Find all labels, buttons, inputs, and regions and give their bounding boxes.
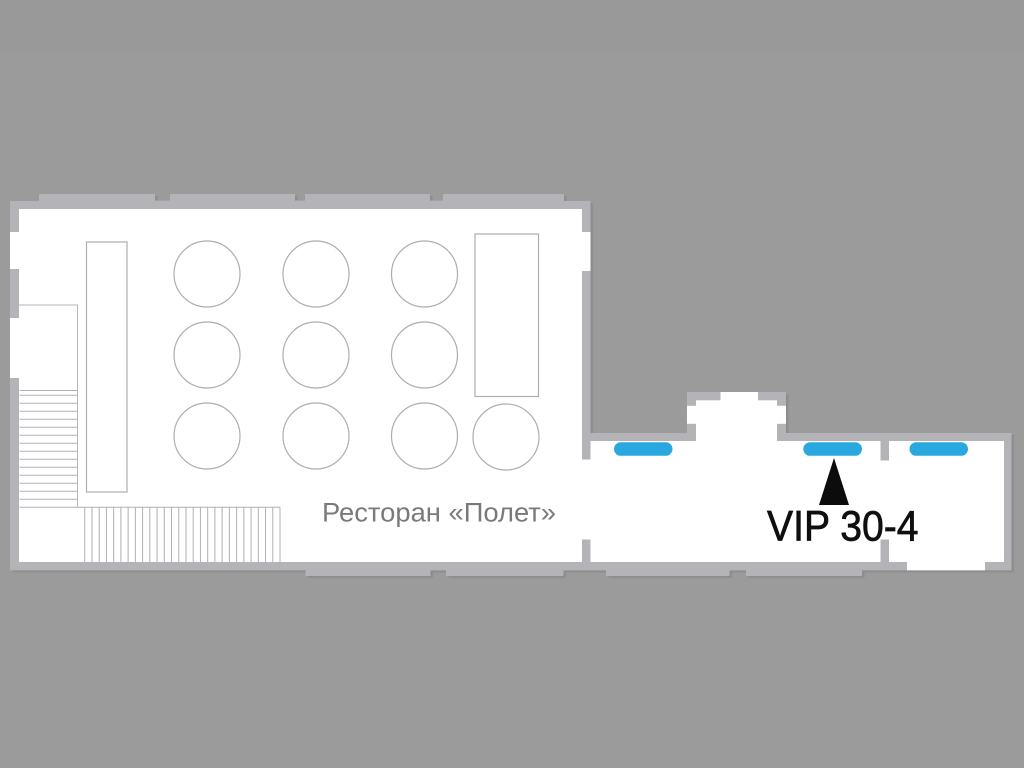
svg-text:VIP 30-4: VIP 30-4 — [767, 503, 919, 551]
svg-text:Ресторан «Полет»: Ресторан «Полет» — [322, 498, 556, 528]
